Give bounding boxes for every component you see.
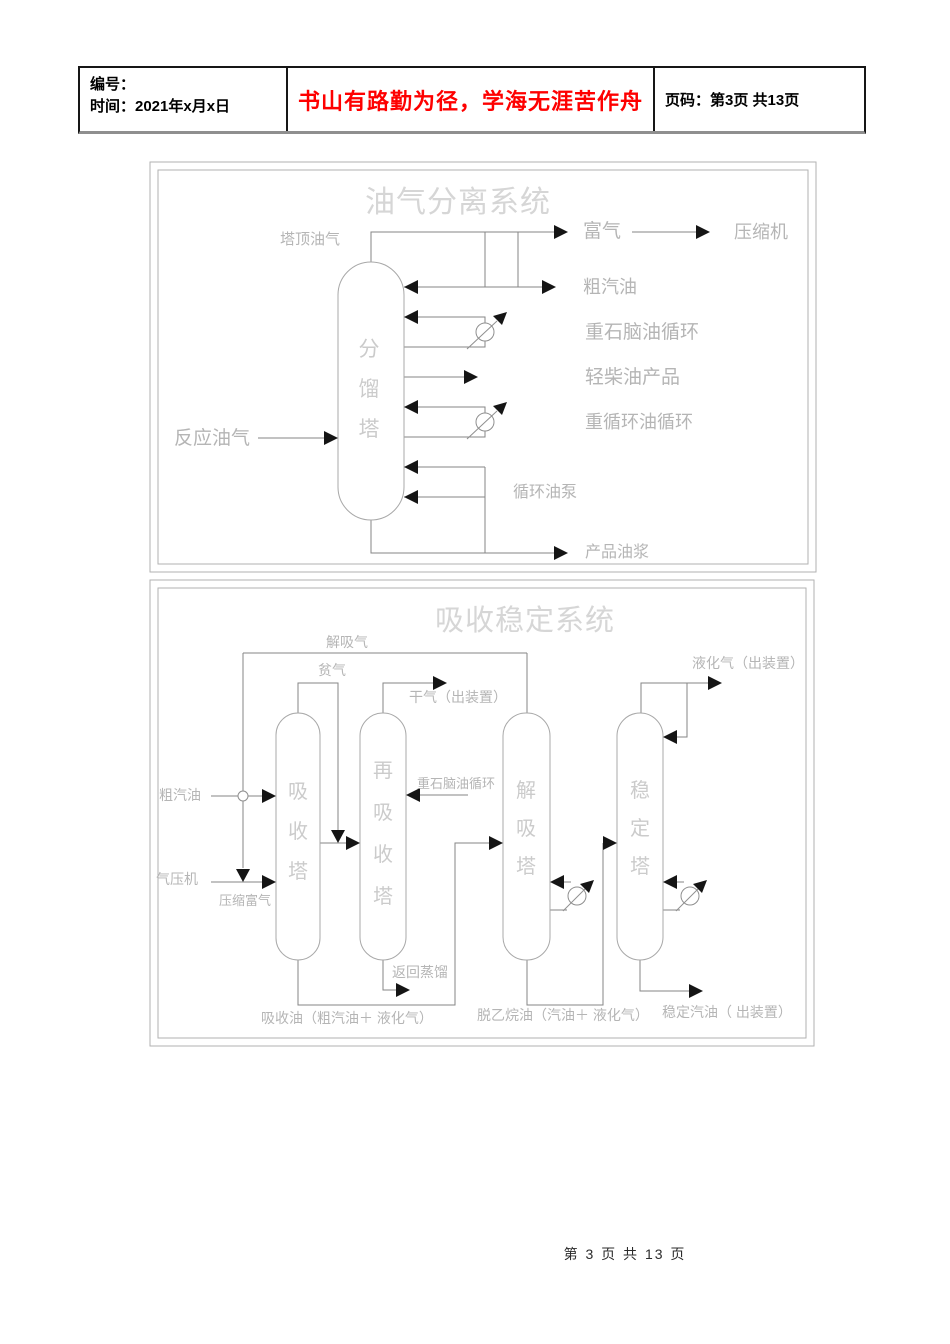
absorber-tower-label: 吸收塔 <box>285 772 311 892</box>
label-heavy-naphtha-cycle: 重石脑油循环 <box>585 323 699 344</box>
desorber-tower-label: 解吸塔 <box>513 772 539 886</box>
label-rich-gas: 富气 <box>583 222 621 243</box>
line-crossover-node <box>238 791 248 801</box>
label-reaction-oil-gas: 反应油气 <box>174 429 250 450</box>
label-lean-gas: 贫气 <box>318 663 346 678</box>
label-light-diesel-product: 轻柴油产品 <box>585 368 680 389</box>
diagram1-title: 油气分离系统 <box>365 177 551 221</box>
label-overhead-oil-gas: 塔顶油气 <box>280 232 340 249</box>
pump-icon <box>467 402 507 439</box>
label-product-slurry: 产品油浆 <box>585 544 649 562</box>
label-cycle-oil-pump: 循环油泵 <box>513 484 577 502</box>
label-heavy-cycle-oil-cycle: 重循环油循环 <box>585 413 693 433</box>
footer-page-info: 第 3 页 共 13 页 <box>540 1244 710 1264</box>
diagram2-frame <box>150 580 814 1046</box>
label-deethanized-oil: 脱乙烷油（汽油＋ 液化气） <box>477 1008 649 1023</box>
diagram1-frame <box>150 162 816 572</box>
stabilizer-tower-label: 稳定塔 <box>627 772 653 886</box>
pump-icon <box>563 880 594 911</box>
label-compressor: 压缩机 <box>734 223 788 243</box>
label-gas-compressor: 气压机 <box>156 872 198 887</box>
fractionator-tower-label: 分馏塔 <box>356 330 382 450</box>
diagram2-title: 吸收稳定系统 <box>435 597 615 639</box>
label-desorbed-gas: 解吸气 <box>326 635 368 650</box>
label-heavy-naphtha-cycle-2: 重石脑油循环 <box>417 777 495 791</box>
label-stabilized-gasoline: 稳定汽油（ 出装置） <box>662 1005 792 1020</box>
label-compressed-rich-gas: 压缩富气 <box>219 894 271 908</box>
reabsorber-tower-label: 再吸收塔 <box>370 750 396 918</box>
pump-icon <box>676 880 707 911</box>
pump-icon <box>467 312 507 349</box>
label-lpg-out: 液化气（出装置） <box>692 656 804 671</box>
label-crude-gasoline: 粗汽油 <box>583 278 637 298</box>
label-absorption-oil: 吸收油（粗汽油＋ 液化气） <box>261 1011 433 1026</box>
label-crude-gasoline-2: 粗汽油 <box>159 788 201 803</box>
label-return-distillation: 返回蒸馏 <box>392 965 448 980</box>
label-dry-gas: 干气（出装置） <box>409 690 507 705</box>
